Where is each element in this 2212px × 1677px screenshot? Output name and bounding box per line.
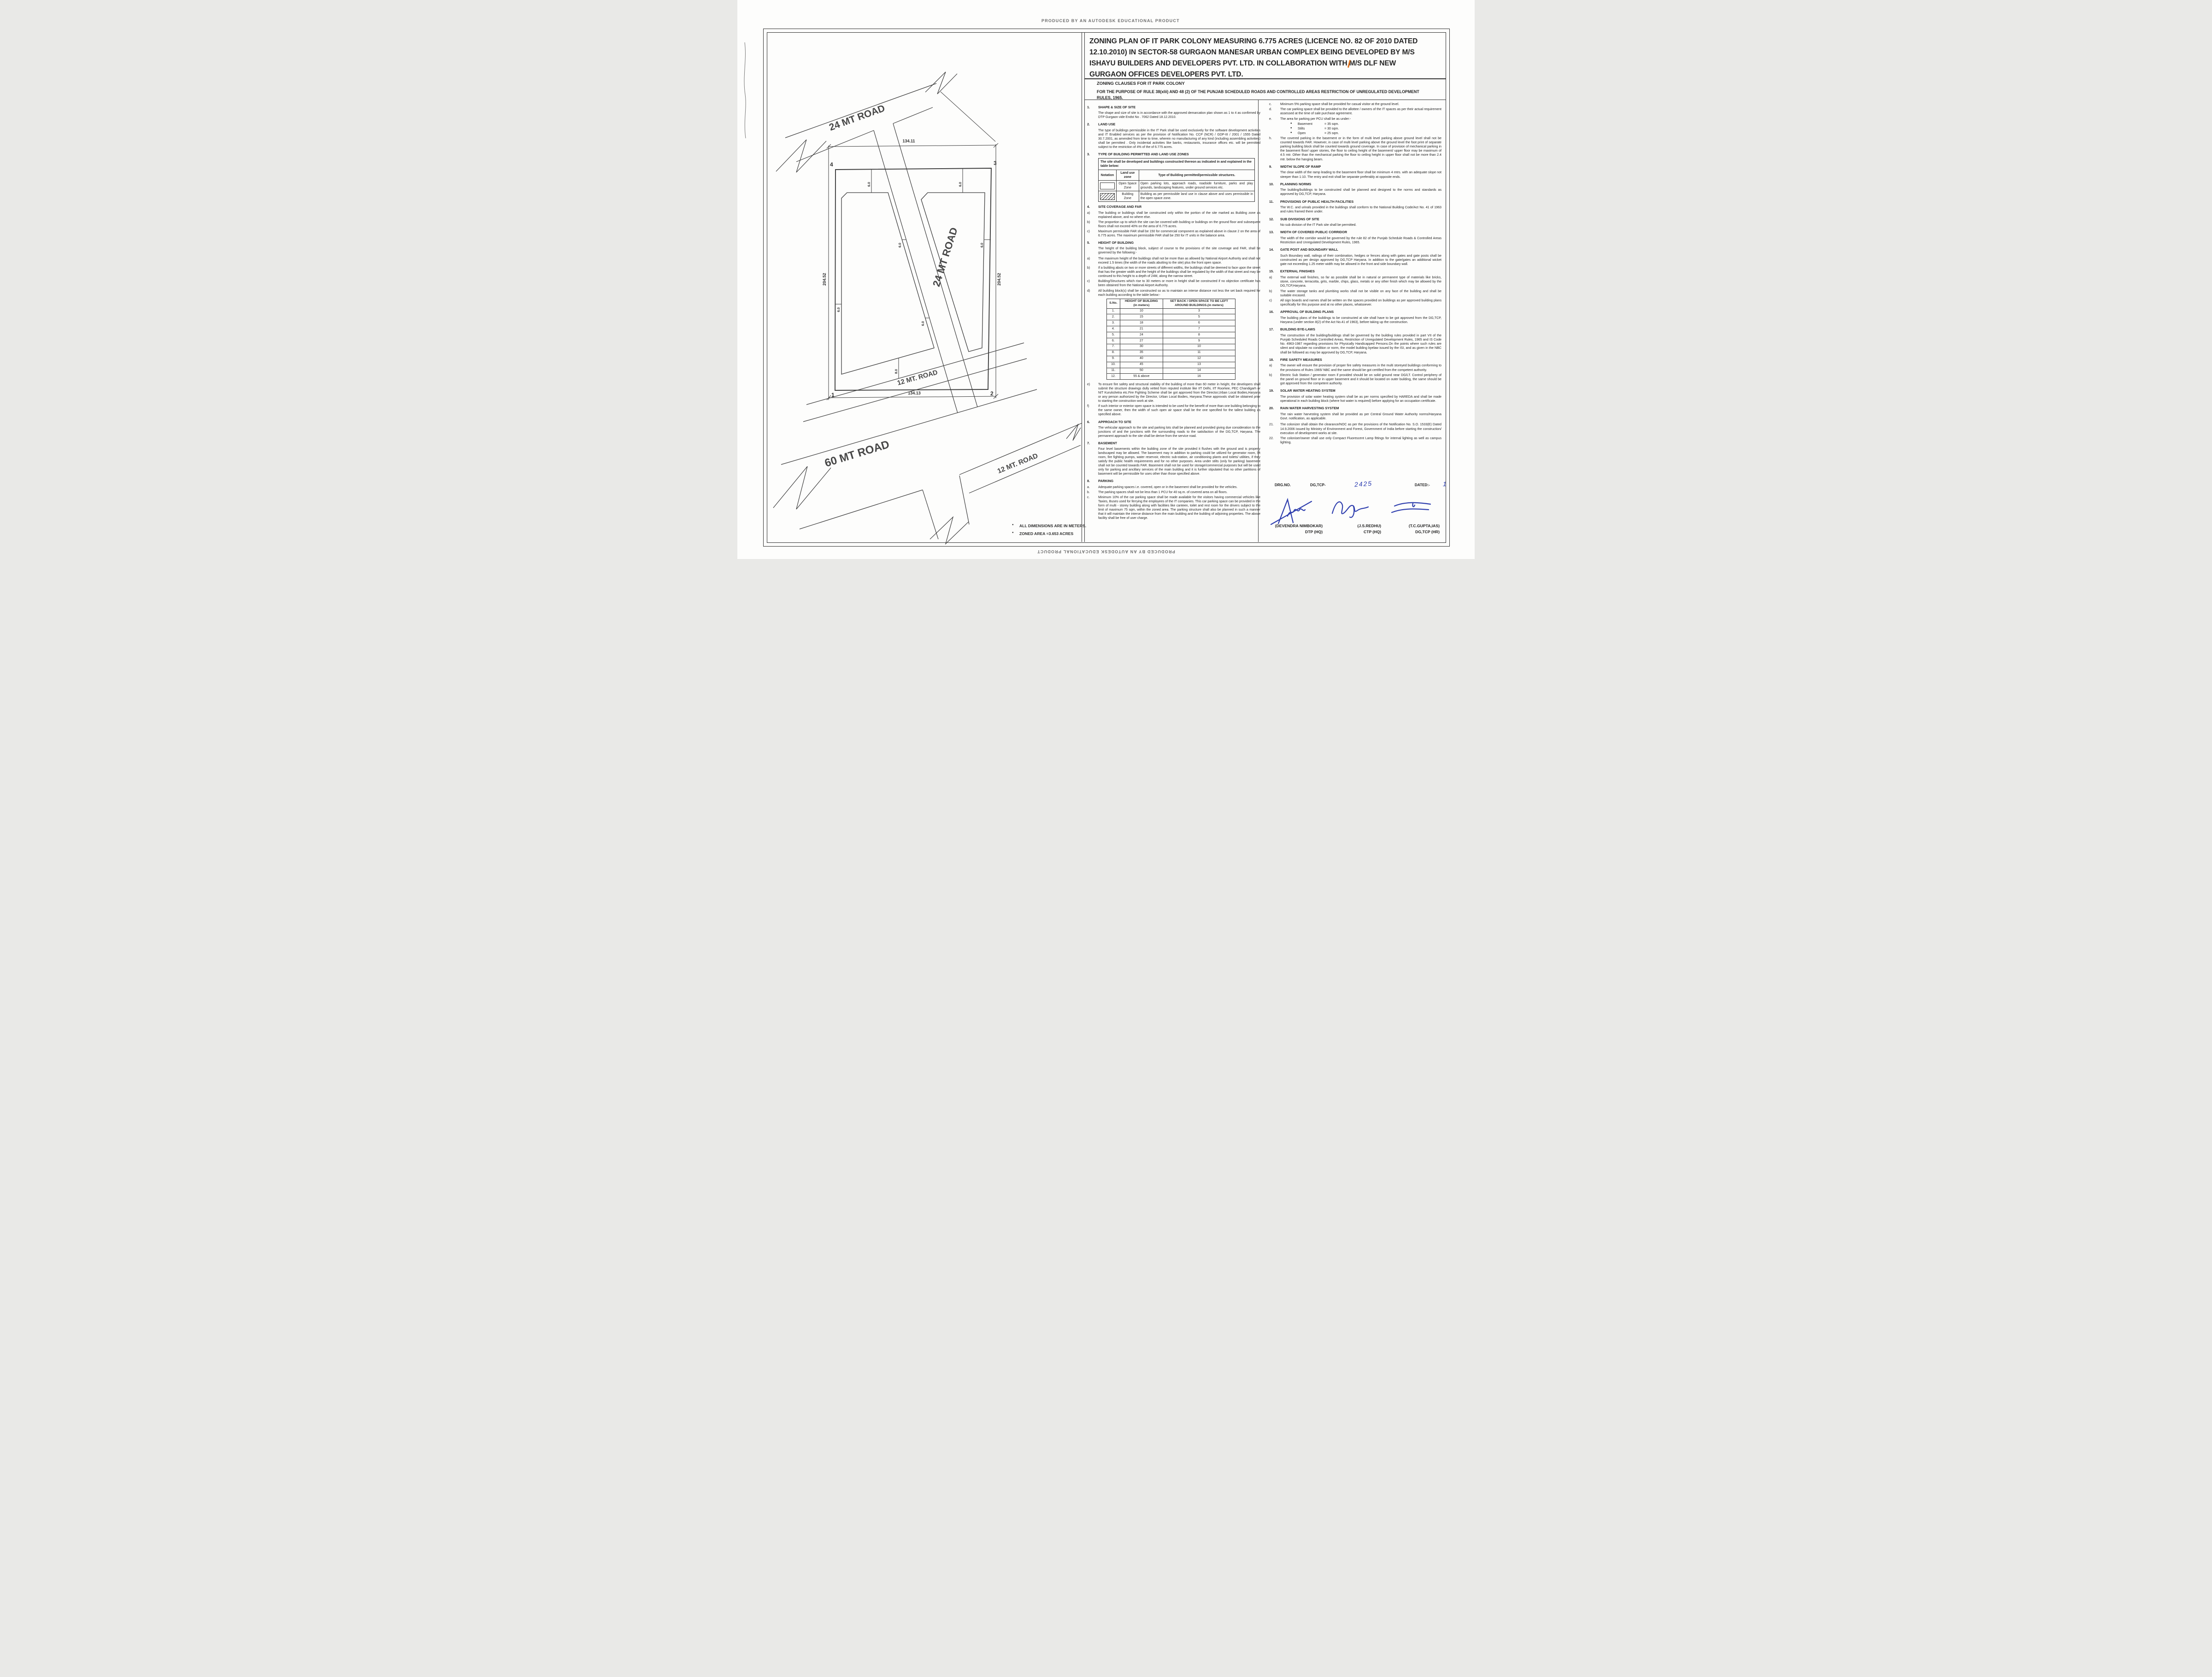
- height-table-row: 5.248: [1107, 332, 1235, 338]
- bullet-value: = 30 sqm.: [1324, 127, 1339, 131]
- subitem-label: b): [1269, 373, 1280, 386]
- land-use-table: The site shall be developed and building…: [1098, 158, 1255, 202]
- clause-paragraph: No sub division of the IT Park site shal…: [1280, 223, 1441, 227]
- subitem-text: Minimum 5% parking space shall be provid…: [1280, 102, 1441, 106]
- clause-heading: 12.SUB DIVISIONS OF SITE: [1269, 217, 1441, 221]
- clause-number: 1.: [1087, 105, 1098, 109]
- bullet-key: Basement: [1298, 122, 1324, 126]
- subitem-text: To ensure fire safety and structural sta…: [1098, 382, 1260, 403]
- pencil-mark: [744, 42, 746, 138]
- land-use-header: Type of Building permitted/permissible s…: [1139, 170, 1254, 181]
- clause-paragraph: The vehicular approach to the site and p…: [1098, 426, 1260, 438]
- clause-subitem: b)If a building abuts on two or more str…: [1087, 266, 1260, 278]
- clause-heading: 17.BUILDING BYE-LAWS: [1269, 327, 1441, 331]
- land-use-desc: Building as per permissible land use in …: [1139, 191, 1254, 202]
- height-table-cell: 12: [1163, 356, 1235, 362]
- drg-number-handwritten: 2425: [1354, 479, 1372, 489]
- clause-number: 20.: [1269, 406, 1280, 410]
- land-use-caption: The site shall be developed and building…: [1099, 159, 1255, 170]
- clause-heading: 11.PROVISIONS OF PUBLIC HEALTH FACILITIE…: [1269, 200, 1441, 204]
- subitem-text: The car parking space shall be provided …: [1280, 107, 1441, 116]
- height-table-cell: 27: [1120, 338, 1163, 344]
- clause-subitem: d.The car parking space shall be provide…: [1269, 107, 1441, 116]
- subitem-label: e.: [1269, 117, 1280, 121]
- height-table-cell: 3.: [1107, 320, 1120, 326]
- signature-block-dgtcp: (T.C.GUPTA,IAS) DG,TCP (HR): [1387, 502, 1440, 535]
- height-table-cell: 7: [1163, 326, 1235, 332]
- height-table-header: SET BACK / OPEN SPACE TO BE LEFT AROUND …: [1163, 299, 1235, 308]
- plan-notes: ●ALL DIMENSIONS ARE IN METERS.●ZONED ARE…: [1012, 524, 1086, 539]
- height-table-cell: 10: [1163, 344, 1235, 350]
- clause-title: RAIN WATER HARVESTING SYSTEM: [1280, 406, 1339, 410]
- signatory-title: DG,TCP (HR): [1387, 530, 1440, 535]
- note-text: ZONED AREA =3.653 ACRES: [1019, 531, 1073, 536]
- clause-number: 16.: [1269, 310, 1280, 314]
- subitem-label: a.: [1087, 485, 1098, 489]
- clause-title: SITE COVERAGE AND FAR: [1098, 205, 1141, 209]
- clause-number: 6.: [1087, 420, 1098, 424]
- plan-text-divider: [1082, 32, 1082, 542]
- height-table-cell: 10: [1120, 308, 1163, 314]
- clause-paragraph: The clear width of the ramp leading to t…: [1280, 171, 1441, 179]
- clause-title: WIDTH/ SLOPE OF RAMP: [1280, 165, 1321, 169]
- clause-subitem: b.The parking spaces shall not be less t…: [1087, 490, 1260, 494]
- clause-title: APPROVAL OF BUILDING PLANS: [1280, 310, 1334, 314]
- clause-number: 8.: [1087, 479, 1098, 483]
- clause-number: 4.: [1087, 205, 1098, 209]
- open-zone-swatch: [1100, 182, 1115, 189]
- clause-number: 15.: [1269, 269, 1280, 273]
- clause-number: 7.: [1087, 441, 1098, 445]
- clause-title: BASEMENT: [1098, 441, 1117, 445]
- subitem-label: b): [1087, 220, 1098, 229]
- subitem-label: d): [1087, 289, 1098, 297]
- clause-heading: 9.WIDTH/ SLOPE OF RAMP: [1269, 165, 1441, 169]
- height-table-cell: 18: [1120, 320, 1163, 326]
- clause-heading: 4.SITE COVERAGE AND FAR: [1087, 205, 1260, 209]
- parking-bullet: ●Basement= 35 sqm.: [1290, 122, 1441, 126]
- subitem-label: c.: [1269, 102, 1280, 106]
- subitem-label: a): [1269, 276, 1280, 288]
- clause-heading: 8.PARKING: [1087, 479, 1260, 483]
- clause-subitem: f)If such interior or exterior open spac…: [1087, 404, 1260, 417]
- land-use-desc: Open parking lots, approach roads, roads…: [1139, 181, 1254, 191]
- signature-block-ctp: (J.S.REDHU) CTP (HQ): [1329, 502, 1381, 535]
- zoning-clauses-heading: ZONING CLAUSES FOR IT PARK COLONY: [1097, 81, 1438, 86]
- height-table-cell: 7.: [1107, 344, 1120, 350]
- clause-subitem: c.Minimum 5% parking space shall be prov…: [1269, 102, 1441, 106]
- subitem-text: Building/Structures which rise to 30 met…: [1098, 279, 1260, 288]
- clause-number: 10.: [1269, 182, 1280, 186]
- clause-number: 13.: [1269, 230, 1280, 234]
- height-table-cell: 40: [1120, 356, 1163, 362]
- bullet-value: = 35 sqm.: [1324, 122, 1339, 126]
- height-table-cell: 9.: [1107, 356, 1120, 362]
- clause-subitem: b)The proportion up to which the site ca…: [1087, 220, 1260, 229]
- dgtcp-label: DG,TCP-: [1310, 483, 1326, 488]
- height-table-row: 3.186: [1107, 320, 1235, 326]
- clauses-column-left: 1.SHAPE & SIZE OF SITEThe shape and size…: [1085, 100, 1265, 542]
- drawing-number-row: DRG.NO. DG,TCP- 2425 DATED:- 18.03.2011: [1269, 480, 1441, 488]
- land-use-row: Open Space ZoneOpen parking lots, approa…: [1099, 181, 1255, 191]
- clause-paragraph: The shape and size of site is in accorda…: [1098, 111, 1260, 119]
- dated-label: DATED:-: [1415, 483, 1430, 488]
- subitem-label: f): [1087, 404, 1098, 417]
- clause-subitem: c)Maximum permissible FAR shall be 150 f…: [1087, 229, 1260, 238]
- subitem-label: b): [1087, 266, 1098, 278]
- note-bullet-icon: ●: [1012, 531, 1019, 536]
- land-use-row: Building ZoneBuilding as per permissible…: [1099, 191, 1255, 202]
- height-table-cell: 5.: [1107, 332, 1120, 338]
- note-bullet-icon: ●: [1012, 524, 1019, 528]
- clause-title: PARKING: [1098, 479, 1113, 483]
- clause-number: 14.: [1269, 247, 1280, 252]
- height-table-row: 8.3511: [1107, 350, 1235, 356]
- clause-heading: 18.FIRE SAFETY MEASURES: [1269, 358, 1441, 362]
- height-table-row: 7.3010: [1107, 344, 1235, 350]
- height-table-row: 11.5014: [1107, 368, 1235, 374]
- clause-subitem: a)The building or buildings shall be con…: [1087, 211, 1260, 219]
- clauses-column-right: c.Minimum 5% parking space shall be prov…: [1265, 100, 1446, 542]
- title-line-1: ZONING PLAN OF IT PARK COLONY MEASURING …: [1089, 36, 1449, 47]
- height-table-cell: 24: [1120, 332, 1163, 338]
- clause-subitem: e)To ensure fire safety and structural s…: [1087, 382, 1260, 403]
- subitem-label: a): [1087, 257, 1098, 265]
- subitem-text: The external wall finishes, so far as po…: [1280, 276, 1441, 288]
- height-table-header: S.No.: [1107, 299, 1120, 308]
- title-rule: [1085, 78, 1446, 79]
- date-handwritten: 18.03.2011: [1443, 480, 1446, 488]
- clause-paragraph: The building/buildings to be constructed…: [1280, 188, 1441, 196]
- land-use-zone: Open Space Zone: [1117, 181, 1139, 191]
- height-table-cell: 2.: [1107, 314, 1120, 320]
- clause-title: PLANNING NORMS: [1280, 182, 1311, 186]
- clause-title: WIDTH OF COVERED PUBLIC CORRIDOR: [1280, 230, 1347, 234]
- clause-heading: 6.APPROACH TO SITE: [1087, 420, 1260, 424]
- clause-heading: 16.APPROVAL OF BUILDING PLANS: [1269, 310, 1441, 314]
- height-table-row: 12.55 & above16: [1107, 374, 1235, 380]
- subitem-label: 21.: [1269, 423, 1280, 435]
- height-table-cell: 12.: [1107, 374, 1120, 380]
- clause-title: BUILDING BYE-LAWS: [1280, 327, 1315, 331]
- clause-title: EXTERNAL FINISHES: [1280, 269, 1315, 273]
- clause-paragraph: The provision of solar water heating sys…: [1280, 395, 1441, 403]
- clause-number: 9.: [1269, 165, 1280, 169]
- subitem-text: The coloniser/owner shall use only Compa…: [1280, 436, 1441, 445]
- title-block: ZONING PLAN OF IT PARK COLONY MEASURING …: [1086, 33, 1452, 80]
- clause-subitem: a)The external wall finishes, so far as …: [1269, 276, 1441, 288]
- title-line-2: 12.10.2010) IN SECTOR-58 GURGAON MANESAR…: [1089, 47, 1449, 58]
- signatory-name: (J.S.REDHU): [1329, 524, 1381, 529]
- signatory-title: CTP (HQ): [1329, 530, 1381, 535]
- clause-subitem: b)Electric Sub Station / generator room …: [1269, 373, 1441, 386]
- purpose-line: FOR THE PURPOSE OF RULE 38(xlii) AND 48 …: [1097, 89, 1419, 101]
- clause-number: 12.: [1269, 217, 1280, 221]
- height-table-row: 1.103: [1107, 308, 1235, 314]
- height-table-cell: 6.: [1107, 338, 1120, 344]
- height-table-row: 6.279: [1107, 338, 1235, 344]
- clause-title: FIRE SAFETY MEASURES: [1280, 358, 1322, 362]
- bullet-icon: ●: [1290, 131, 1298, 135]
- clause-subitem: e.The area for parking per PCU shall be …: [1269, 117, 1441, 121]
- subitem-text: All sign boards and names shall be writt…: [1280, 299, 1441, 307]
- clause-title: HEIGHT OF BUILDING: [1098, 241, 1134, 245]
- subitem-text: The building or buildings shall be const…: [1098, 211, 1260, 219]
- bullet-icon: ●: [1290, 127, 1298, 131]
- autodesk-banner-bottom: PRODUCED BY AN AUTODESK EDUCATIONAL PROD…: [1037, 549, 1175, 554]
- clause-heading: 7.BASEMENT: [1087, 441, 1260, 445]
- subitem-text: The area for parking per PCU shall be as…: [1280, 117, 1441, 121]
- clause-number: 2.: [1087, 122, 1098, 126]
- height-table-cell: 55 & above: [1120, 374, 1163, 380]
- clause-heading: 2.LAND USE: [1087, 122, 1260, 126]
- clause-paragraph: Four level basements within the building…: [1098, 447, 1260, 476]
- height-table-cell: 11: [1163, 350, 1235, 356]
- subitem-text: The owner will ensure the provision of p…: [1280, 364, 1441, 372]
- height-table-cell: 4.: [1107, 326, 1120, 332]
- height-table-header: HEIGHT OF BUILDING (in meters): [1120, 299, 1163, 308]
- clause-title: GATE POST AND BOUNDARY WALL: [1280, 247, 1338, 252]
- clause-title: SHAPE & SIZE OF SITE: [1098, 105, 1135, 109]
- subitem-text: Adequate parking spaces i.e. covered, op…: [1098, 485, 1260, 489]
- height-table-cell: 11.: [1107, 368, 1120, 374]
- subitem-text: The colonizer shall obtain the clearance…: [1280, 423, 1441, 435]
- clause-paragraph: Such Boundary wall, railings of their co…: [1280, 254, 1441, 267]
- height-table-cell: 6: [1163, 320, 1235, 326]
- clause-number: 5.: [1087, 241, 1098, 245]
- clause-subitem: a.Adequate parking spaces i.e. covered, …: [1087, 485, 1260, 489]
- clause-heading: 20.RAIN WATER HARVESTING SYSTEM: [1269, 406, 1441, 410]
- clause-heading: 19.SOLAR WATER HEATING SYSTEM: [1269, 388, 1441, 393]
- clause-subitem: a)The maximum height of the buildings sh…: [1087, 257, 1260, 265]
- clause-title: PROVISIONS OF PUBLIC HEALTH FACILITIES: [1280, 200, 1353, 204]
- subitem-text: If a building abuts on two or more stree…: [1098, 266, 1260, 278]
- signature-ink-ctp: [1327, 496, 1373, 522]
- height-table-cell: 15: [1120, 314, 1163, 320]
- plan-note: ●ZONED AREA =3.653 ACRES: [1012, 531, 1086, 536]
- clause-heading: 1.SHAPE & SIZE OF SITE: [1087, 105, 1260, 109]
- subitem-label: a): [1269, 364, 1280, 372]
- height-table-cell: 3: [1163, 308, 1235, 314]
- clause-number: 19.: [1269, 388, 1280, 393]
- bullet-value: = 25 sqm.: [1324, 131, 1339, 135]
- bullet-key: Open: [1298, 131, 1324, 135]
- height-setback-table: S.No.HEIGHT OF BUILDING (in meters)SET B…: [1106, 299, 1235, 380]
- subitem-label: c): [1087, 229, 1098, 238]
- clause-subitem: h.The covered parking in the basement or…: [1269, 136, 1441, 162]
- land-use-header: Notation: [1099, 170, 1117, 181]
- clause-title: APPROACH TO SITE: [1098, 420, 1131, 424]
- clause-paragraph: The width of the corridor would be gover…: [1280, 236, 1441, 245]
- clause-subitem: 21.The colonizer shall obtain the cleara…: [1269, 423, 1441, 435]
- subitem-label: b.: [1087, 490, 1098, 494]
- land-use-zone: Building Zone: [1117, 191, 1139, 202]
- subitem-text: The proportion up to which the site can …: [1098, 220, 1260, 229]
- height-table-cell: 30: [1120, 344, 1163, 350]
- clause-heading: 14.GATE POST AND BOUNDARY WALL: [1269, 247, 1441, 252]
- signatory-title: DTP (HQ): [1270, 530, 1323, 535]
- subitem-text: Electric Sub Station / generator room if…: [1280, 373, 1441, 386]
- height-table-cell: 8.: [1107, 350, 1120, 356]
- clause-number: 18.: [1269, 358, 1280, 362]
- height-table-cell: 50: [1120, 368, 1163, 374]
- subitem-text: Minimum 10% of the car parking space sha…: [1098, 495, 1260, 520]
- subitem-text: The parking spaces shall not be less tha…: [1098, 490, 1260, 494]
- clause-heading: 10.PLANNING NORMS: [1269, 182, 1441, 186]
- subitem-text: The maximum height of the buildings shal…: [1098, 257, 1260, 265]
- clause-title: TYPE OF BUILDING PERMITTED AND LAND USE …: [1098, 152, 1189, 156]
- bullet-key: Stilts: [1298, 127, 1324, 131]
- subitem-text: Maximum permissible FAR shall be 150 for…: [1098, 229, 1260, 238]
- land-use-header: Land use zone: [1117, 170, 1139, 181]
- subitem-label: c): [1269, 299, 1280, 307]
- clause-heading: 3.TYPE OF BUILDING PERMITTED AND LAND US…: [1087, 152, 1260, 156]
- signature-ink-dgtcp: [1387, 496, 1433, 519]
- hatched-zone-swatch: [1100, 193, 1115, 200]
- bullet-icon: ●: [1290, 122, 1298, 126]
- height-table-row: 10.4513: [1107, 362, 1235, 368]
- clause-subitem: c)All sign boards and names shall be wri…: [1269, 299, 1441, 307]
- subtitle-block: ZONING CLAUSES FOR IT PARK COLONY FOR TH…: [1097, 81, 1438, 101]
- clause-paragraph: The construction of the building/buildin…: [1280, 334, 1441, 355]
- clauses-columns: 1.SHAPE & SIZE OF SITEThe shape and size…: [1085, 100, 1446, 542]
- height-table-cell: 13: [1163, 362, 1235, 368]
- subitem-label: d.: [1269, 107, 1280, 116]
- subitem-label: a): [1087, 211, 1098, 219]
- height-table-cell: 8: [1163, 332, 1235, 338]
- clause-title: SOLAR WATER HEATING SYSTEM: [1280, 388, 1335, 393]
- parking-bullet: ●Open= 25 sqm.: [1290, 131, 1441, 135]
- height-table-cell: 1.: [1107, 308, 1120, 314]
- note-text: ALL DIMENSIONS ARE IN METERS.: [1019, 524, 1086, 528]
- height-table-cell: 10.: [1107, 362, 1120, 368]
- clause-paragraph: The building plans of the buildings to b…: [1280, 316, 1441, 324]
- signature-block-dtp: (DEVENDRA NIMBOKAR) DTP (HQ): [1270, 502, 1323, 535]
- clause-heading: 13.WIDTH OF COVERED PUBLIC CORRIDOR: [1269, 230, 1441, 234]
- clause-paragraph: The rain water harvesting system shall b…: [1280, 412, 1441, 421]
- height-table-row: 4.217: [1107, 326, 1235, 332]
- signatory-name: (T.C.GUPTA,IAS): [1387, 524, 1440, 529]
- signature-ink-extra: [1279, 535, 1309, 542]
- height-table-cell: 21: [1120, 326, 1163, 332]
- clause-number: 17.: [1269, 327, 1280, 331]
- clauses-right-flow: c.Minimum 5% parking space shall be prov…: [1269, 102, 1441, 446]
- clause-title: SUB DIVISIONS OF SITE: [1280, 217, 1319, 221]
- subitem-text: The water storage tanks and plumbing wor…: [1280, 289, 1441, 298]
- parking-bullet: ●Stilts= 30 sqm.: [1290, 127, 1441, 131]
- clause-heading: 15.EXTERNAL FINISHES: [1269, 269, 1441, 273]
- clause-number: 3.: [1087, 152, 1098, 156]
- signatures-row: (DEVENDRA NIMBOKAR) DTP (HQ) (J.S.REDHU)…: [1270, 502, 1440, 535]
- subitem-text: All building block(s) shall be construct…: [1098, 289, 1260, 297]
- subitem-text: If such interior or exterior open space …: [1098, 404, 1260, 417]
- height-table-row: 9.4012: [1107, 356, 1235, 362]
- subitem-label: 22.: [1269, 436, 1280, 445]
- title-line-3: ISHAYU BUILDERS AND DEVELOPERS PVT. LTD.…: [1089, 58, 1449, 69]
- clause-subitem: c.Minimum 10% of the car parking space s…: [1087, 495, 1260, 520]
- subitem-label: e): [1087, 382, 1098, 403]
- clause-subitem: d)All building block(s) shall be constru…: [1087, 289, 1260, 297]
- clause-subitem: 22.The coloniser/owner shall use only Co…: [1269, 436, 1441, 445]
- clause-subitem: b)The water storage tanks and plumbing w…: [1269, 289, 1441, 298]
- clause-number: 11.: [1269, 200, 1280, 204]
- clause-subitem: a)The owner will ensure the provision of…: [1269, 364, 1441, 372]
- clause-heading: 5.HEIGHT OF BUILDING: [1087, 241, 1260, 245]
- zoning-plan-sheet: PRODUCED BY AN AUTODESK EDUCATIONAL PROD…: [737, 0, 1475, 559]
- subitem-text: The covered parking in the basement or i…: [1280, 136, 1441, 162]
- clause-paragraph: The W.C. and urinals provided in the bui…: [1280, 206, 1441, 214]
- height-table-row: 2.155: [1107, 314, 1235, 320]
- height-table-cell: 9: [1163, 338, 1235, 344]
- subitem-label: h.: [1269, 136, 1280, 162]
- clause-subitem: c)Building/Structures which rise to 30 m…: [1087, 279, 1260, 288]
- signature-ink-dtp: [1267, 496, 1318, 525]
- plan-note: ●ALL DIMENSIONS ARE IN METERS.: [1012, 524, 1086, 528]
- height-table-cell: 14: [1163, 368, 1235, 374]
- subitem-label: b): [1269, 289, 1280, 298]
- drg-no-label: DRG.NO.: [1275, 483, 1291, 488]
- subitem-label: c): [1087, 279, 1098, 288]
- clause-paragraph: The type of buildings permissible in the…: [1098, 129, 1260, 149]
- height-table-cell: 45: [1120, 362, 1163, 368]
- autodesk-banner-top: PRODUCED BY AN AUTODESK EDUCATIONAL PROD…: [1041, 18, 1180, 23]
- height-table-cell: 35: [1120, 350, 1163, 356]
- clause-paragraph: The height of the building block, subjec…: [1098, 247, 1260, 255]
- height-table-cell: 5: [1163, 314, 1235, 320]
- height-table-cell: 16: [1163, 374, 1235, 380]
- clause-title: LAND USE: [1098, 122, 1115, 126]
- subitem-label: c.: [1087, 495, 1098, 520]
